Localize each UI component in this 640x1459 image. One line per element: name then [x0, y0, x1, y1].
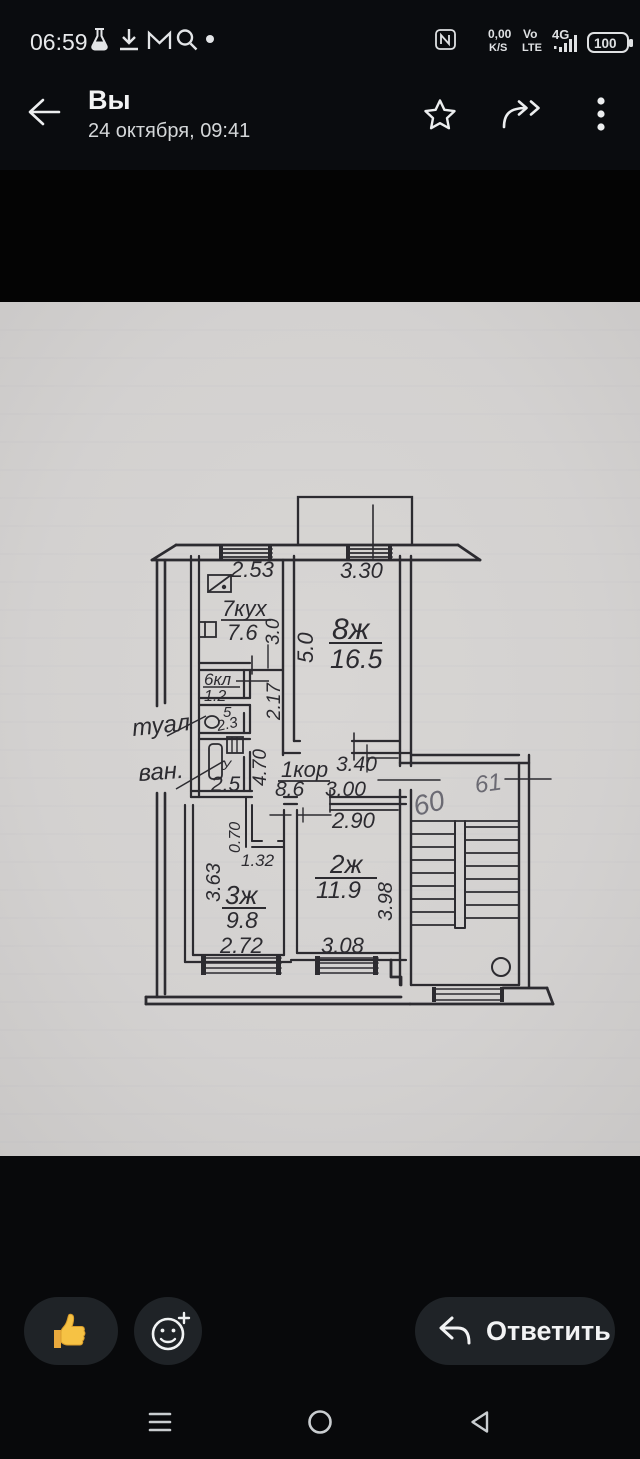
svg-text:100: 100 — [594, 36, 617, 51]
svg-text:3.0: 3.0 — [263, 618, 284, 645]
svg-text:3.08: 3.08 — [321, 933, 365, 958]
svg-text:ван.: ван. — [138, 757, 185, 787]
svg-text:1.2: 1.2 — [204, 688, 226, 705]
svg-text:0.70: 0.70 — [227, 822, 244, 853]
svg-text:3.00: 3.00 — [325, 778, 366, 801]
svg-text:7.6: 7.6 — [227, 620, 258, 645]
svg-text:LTE: LTE — [522, 42, 542, 54]
svg-text:K/S: K/S — [489, 42, 507, 54]
svg-text:2.5: 2.5 — [210, 773, 241, 796]
svg-text:4.70: 4.70 — [250, 749, 271, 786]
svg-text:3.98: 3.98 — [375, 882, 397, 921]
svg-text:2.53: 2.53 — [230, 557, 275, 582]
svg-text:5.0: 5.0 — [293, 632, 318, 663]
svg-text:1.32: 1.32 — [241, 851, 275, 870]
svg-text:4G: 4G — [552, 27, 569, 42]
svg-text:0,00: 0,00 — [488, 27, 512, 41]
svg-text:6кл: 6кл — [204, 670, 231, 689]
svg-text:2.17: 2.17 — [264, 682, 285, 721]
svg-text:3.63: 3.63 — [203, 863, 225, 902]
svg-text:9.8: 9.8 — [226, 907, 258, 933]
svg-text:2.72: 2.72 — [219, 933, 263, 958]
svg-text:7кух: 7кух — [222, 596, 268, 621]
svg-text:3.30: 3.30 — [340, 558, 384, 583]
svg-text:11.9: 11.9 — [316, 877, 361, 904]
svg-text:3ж: 3ж — [225, 880, 258, 910]
svg-text:2ж: 2ж — [329, 849, 363, 879]
svg-text:Vo: Vo — [523, 27, 537, 41]
svg-text:61: 61 — [473, 768, 503, 798]
svg-text:2.90: 2.90 — [331, 808, 376, 833]
svg-text:16.5: 16.5 — [330, 644, 384, 674]
svg-text:8ж: 8ж — [332, 613, 371, 646]
svg-text:3.40: 3.40 — [336, 753, 377, 776]
svg-text:8.6: 8.6 — [275, 778, 305, 801]
